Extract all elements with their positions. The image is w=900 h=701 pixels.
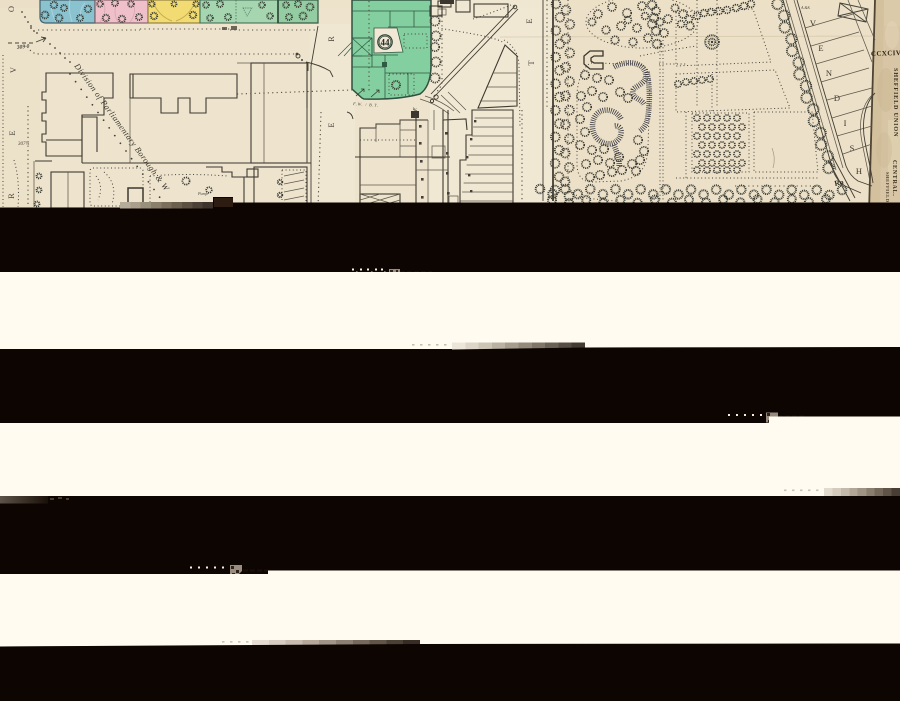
svg-text:E: E (327, 122, 336, 127)
svg-text:R: R (6, 193, 16, 199)
svg-text:Pump: Pump (197, 191, 208, 196)
svg-text:E: E (818, 43, 823, 53)
svg-text:V: V (8, 66, 18, 73)
svg-text:O: O (6, 6, 16, 12)
svg-text:I: I (844, 118, 847, 128)
svg-text:SHEFFIELD: SHEFFIELD (885, 172, 890, 203)
svg-text:307¼: 307¼ (18, 142, 30, 147)
svg-text:E: E (7, 130, 17, 135)
svg-text:T: T (526, 60, 536, 66)
svg-text:CCXCIV.: CCXCIV. (871, 49, 900, 58)
svg-text:N: N (826, 68, 832, 78)
svg-text:SHEFFIELD UNION: SHEFFIELD UNION (892, 68, 899, 137)
svg-text:E: E (524, 18, 534, 23)
svg-text:CENTRAL.: CENTRAL. (891, 160, 897, 196)
svg-text:A.&S.: A.&S. (800, 5, 811, 10)
svg-text:H: H (856, 166, 862, 176)
svg-text:44: 44 (381, 38, 391, 48)
svg-text:R: R (327, 36, 336, 42)
